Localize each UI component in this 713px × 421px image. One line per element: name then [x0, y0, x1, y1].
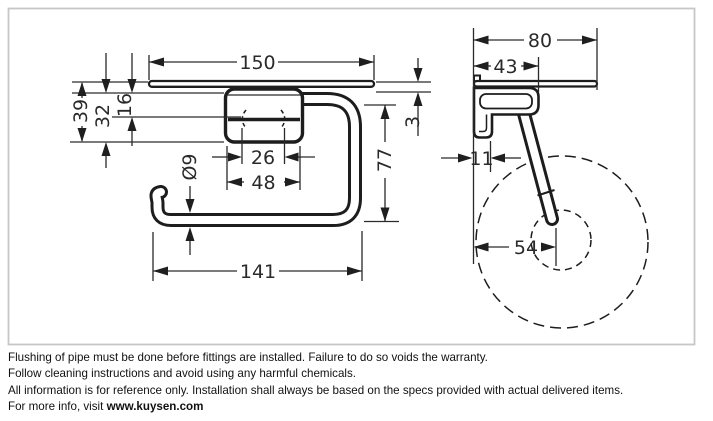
dim-label-diameter-9: Ø9: [179, 153, 201, 180]
dim-shelf-depth: 80: [474, 30, 598, 52]
footer-note-website: For more info, visit www.kuysen.com: [8, 399, 708, 415]
dim-label-11: 11: [469, 148, 493, 170]
technical-drawing: 150 39 32 16: [0, 0, 713, 350]
paper-roll-core: [531, 210, 591, 270]
dim-label-54: 54: [514, 237, 538, 259]
dim-label-141: 141: [240, 261, 276, 283]
footer-note-warranty: Flushing of pipe must be done before fit…: [8, 350, 708, 366]
footer-note-reference: All information is for reference only. I…: [8, 383, 708, 399]
dim-shelf-width: 150: [149, 52, 374, 80]
dim-label-77: 77: [374, 148, 396, 172]
dim-label-3: 3: [402, 116, 424, 128]
dim-bar-length: 141: [153, 231, 362, 283]
paper-roll-outline: [476, 156, 648, 328]
dim-bar-drop: 77: [364, 105, 399, 222]
dim-holder-depth: 43: [474, 56, 539, 78]
dim-roll-offset: 54: [474, 237, 557, 259]
dim-label-39: 39: [70, 99, 92, 123]
holder-bar-side-fill: [522, 106, 552, 219]
footer-notes: Flushing of pipe must be done before fit…: [8, 350, 708, 416]
dim-wall-thickness: 11: [441, 148, 521, 170]
dim-height-mid: 32: [92, 53, 114, 168]
website-link[interactable]: www.kuysen.com: [107, 400, 204, 413]
dim-height-total: 39: [70, 82, 92, 142]
dim-label-32: 32: [92, 104, 114, 128]
front-view: 150 39 32 16: [70, 52, 431, 283]
mounting-plate: [226, 89, 303, 142]
shelf-front: [149, 81, 374, 87]
dim-label-16: 16: [114, 93, 136, 117]
dim-bar-diameter: Ø9: [179, 153, 201, 255]
dim-label-43: 43: [493, 56, 517, 78]
dim-shelf-gap: 3: [376, 58, 431, 136]
footer-note-cleaning: Follow cleaning instructions and avoid u…: [8, 366, 708, 382]
website-prefix: For more info, visit: [8, 400, 107, 413]
dim-label-80: 80: [528, 30, 552, 52]
side-view: 80 43 11 54: [441, 28, 648, 328]
dim-label-48: 48: [251, 172, 275, 194]
shelf-side: [474, 81, 597, 87]
dim-height-small: 16: [114, 53, 137, 146]
dim-label-150: 150: [239, 52, 275, 74]
dim-label-26: 26: [251, 147, 275, 169]
